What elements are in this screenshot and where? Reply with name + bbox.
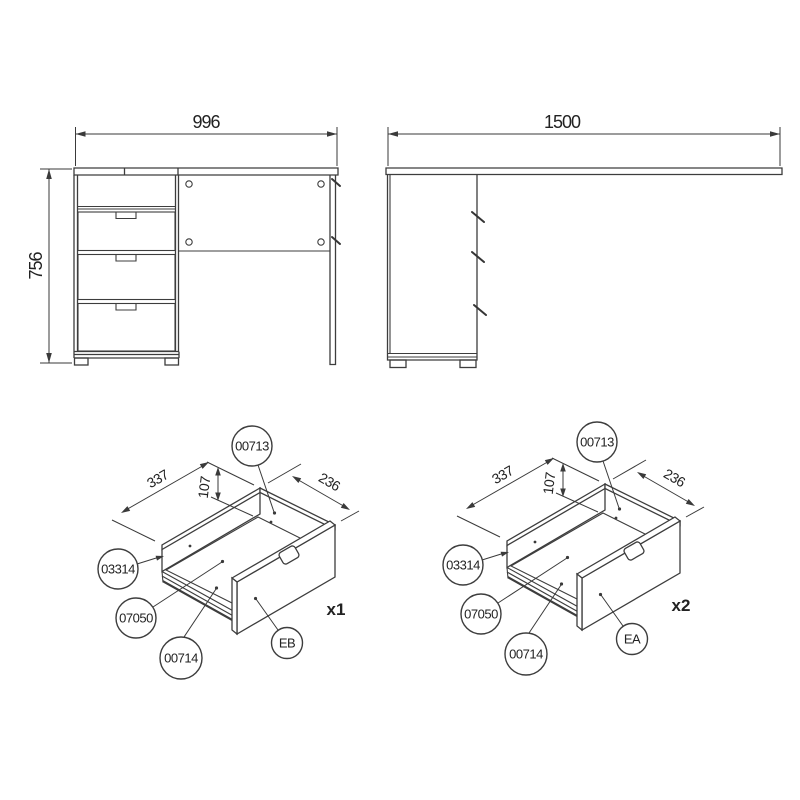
- front-dim-width-label: 996: [192, 112, 220, 132]
- leader-dot: [560, 582, 563, 585]
- leader-dot: [599, 593, 602, 596]
- leader-dot: [254, 597, 257, 600]
- reference-dot: [534, 541, 537, 544]
- dim-height-label: 107: [540, 471, 559, 495]
- balloon-back-panel-label: 00713: [235, 439, 269, 454]
- reference-dot: [189, 545, 192, 548]
- balloon-bottom-panel-label: 00714: [509, 647, 543, 662]
- leader-dot: [221, 560, 224, 563]
- balloon-rail-label: 07050: [119, 611, 153, 626]
- technical-drawing: 996 756 1500: [0, 0, 800, 800]
- reference-dot: [270, 521, 273, 524]
- front-dim-height-label: 756: [26, 252, 46, 280]
- dim-height-label: 107: [195, 475, 214, 499]
- leader-dot: [566, 556, 569, 559]
- balloon-back-panel-label: 00713: [580, 435, 614, 450]
- reference-dot: [615, 517, 618, 520]
- drawer-front-panel-side-edge: [232, 578, 237, 634]
- side-dim-depth-label: 1500: [544, 112, 581, 132]
- leader-dot: [618, 507, 621, 510]
- balloon-bottom-panel-label: 00714: [164, 651, 198, 666]
- leader-dot: [215, 586, 218, 589]
- balloon-side-panel-label: 03314: [101, 562, 135, 577]
- quantity-label: x2: [672, 596, 691, 615]
- balloon-side-panel-label: 03314: [446, 558, 480, 573]
- assembly-drawing-page: 996 756 1500: [0, 0, 800, 800]
- balloon-front-panel-label: EB: [279, 636, 295, 651]
- drawing-background: [0, 0, 800, 800]
- quantity-label: x1: [327, 600, 346, 619]
- balloon-front-panel-label: EA: [624, 632, 641, 647]
- drawer-front-panel-side-edge: [577, 574, 582, 630]
- balloon-rail-label: 07050: [464, 607, 498, 622]
- leader-dot: [273, 511, 276, 514]
